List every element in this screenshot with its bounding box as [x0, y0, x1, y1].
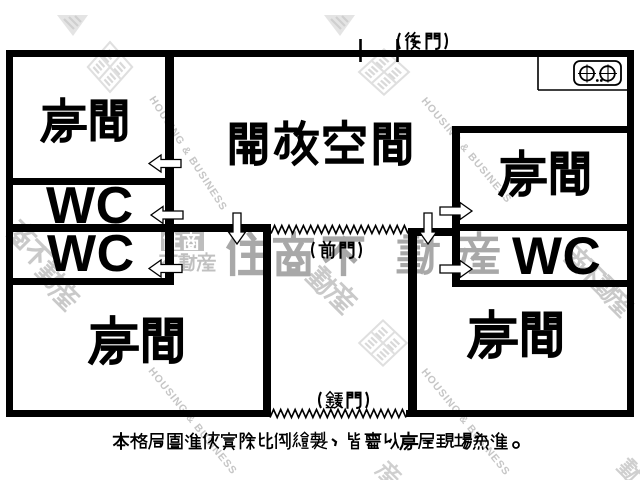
svg-text:WC: WC	[512, 227, 601, 286]
svg-text:WC: WC	[47, 225, 135, 283]
